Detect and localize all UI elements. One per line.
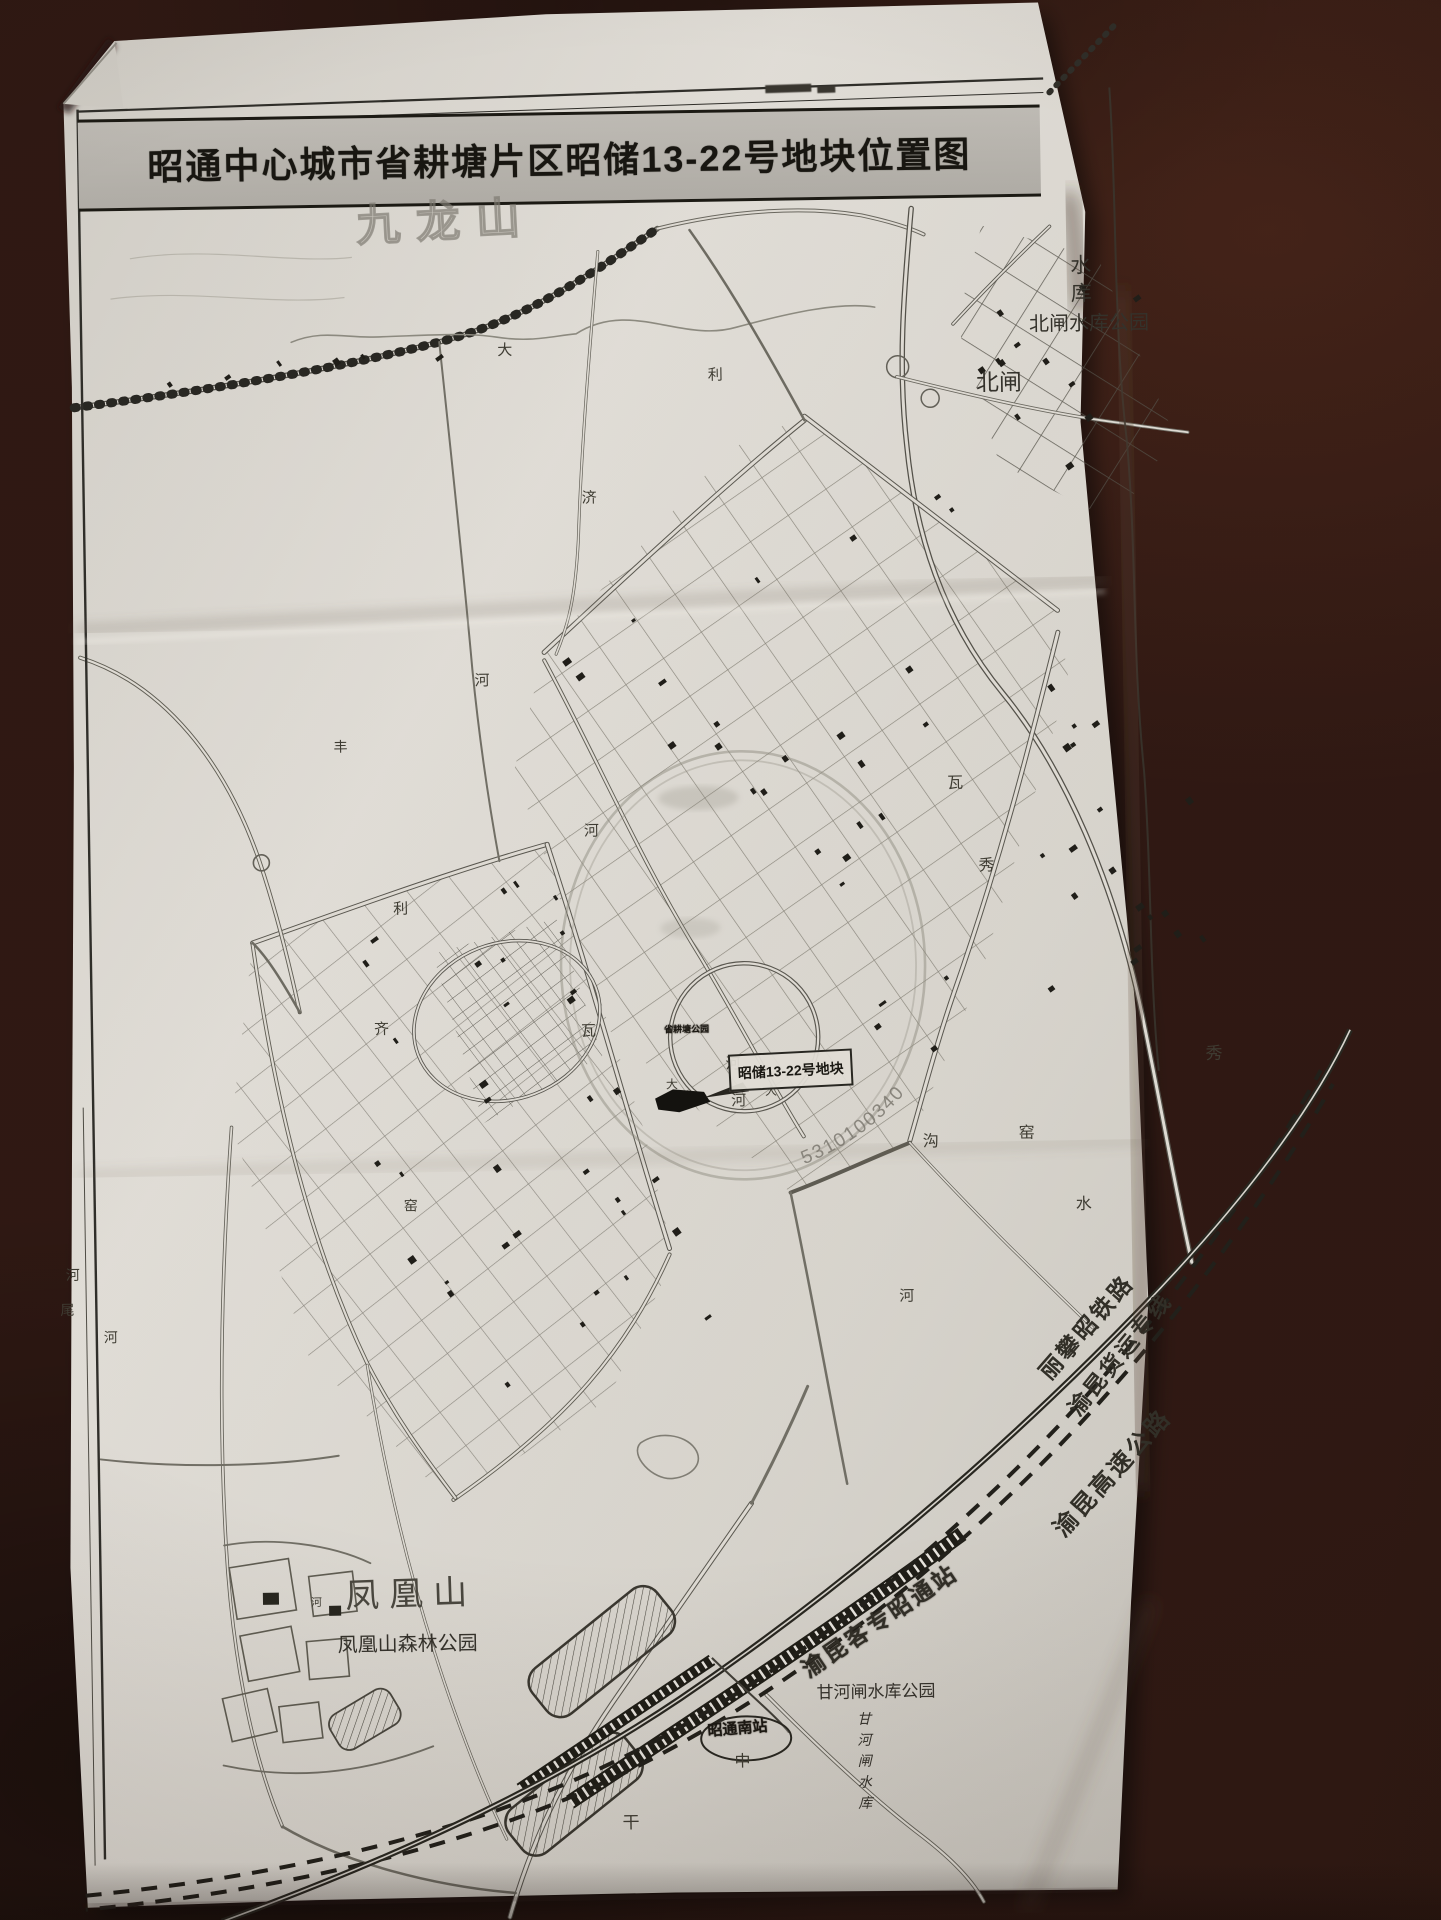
road-char: 水 (1076, 1196, 1092, 1214)
road-char: 秀 (978, 857, 994, 875)
river-char: 河 (104, 1331, 118, 1346)
ganhezha-reservoir-label: 甘河闸水库 (855, 1711, 872, 1816)
map-labels-layer: 九龙山水库北闸水库公园北闸大利济河丰河利齐瓦河河瓦秀沟窑水秀河窑河尾河大大中干河… (0, 0, 1441, 1920)
road-char: 秀 (1205, 1045, 1222, 1064)
yukun-station-label: 渝昆客专昭通站 (798, 1561, 963, 1683)
parcel-callout: 昭储13-22号地块 (728, 1048, 854, 1091)
road-char: 瓦 (947, 775, 963, 793)
road-char: 窑 (1019, 1125, 1035, 1143)
ganhezha-park-label: 甘河闸水库公园 (816, 1682, 935, 1702)
road-char: 干 (622, 1814, 639, 1833)
station-south-label: 昭通南站 (707, 1719, 768, 1740)
road-char: 大 (497, 343, 512, 359)
river-char: 河 (66, 1269, 80, 1284)
road-char: 河 (731, 1093, 746, 1109)
river-char: 尾 (60, 1304, 74, 1319)
road-char: 窑 (404, 1199, 418, 1214)
road-char: 齐 (374, 1022, 389, 1038)
paper-sheet: 5310100340 昭通中心城市省耕塘片区昭储13-22号地块位置图 九龙山水… (0, 0, 1441, 1920)
road-char: 利 (708, 368, 723, 384)
road-char: 丰 (333, 740, 347, 755)
road-char: 河 (899, 1289, 914, 1305)
road-char: 济 (582, 491, 597, 507)
fenghuangshan-label: 凤凰山 (345, 1575, 478, 1616)
fenghuang-forest-park-label: 凤凰山森林公园 (338, 1634, 478, 1658)
road-char: 河 (584, 824, 599, 840)
beizha-label: 北闸 (976, 371, 1022, 397)
road-char: 河 (311, 1598, 322, 1610)
reservoir-label: 水库 (1068, 254, 1092, 310)
road-char: 中 (734, 1753, 750, 1771)
road-char: 大 (666, 1078, 678, 1091)
parcel-callout-label: 昭储13-22号地块 (737, 1057, 844, 1082)
road-char: 利 (393, 902, 408, 918)
road-char: 河 (474, 673, 489, 689)
yukun-expressway-label: 渝昆高速公路 (1050, 1405, 1178, 1543)
beizha-park-label: 北闸水库公园 (1029, 313, 1149, 336)
hill-label: 九龙山 (355, 194, 537, 251)
road-char: 瓦 (581, 1024, 596, 1040)
road-char: 沟 (923, 1133, 939, 1151)
shenggengtang-park-label: 省耕塘公园 (664, 1025, 709, 1035)
photo-of-map: 5310100340 昭通中心城市省耕塘片区昭储13-22号地块位置图 九龙山水… (0, 0, 1441, 1920)
